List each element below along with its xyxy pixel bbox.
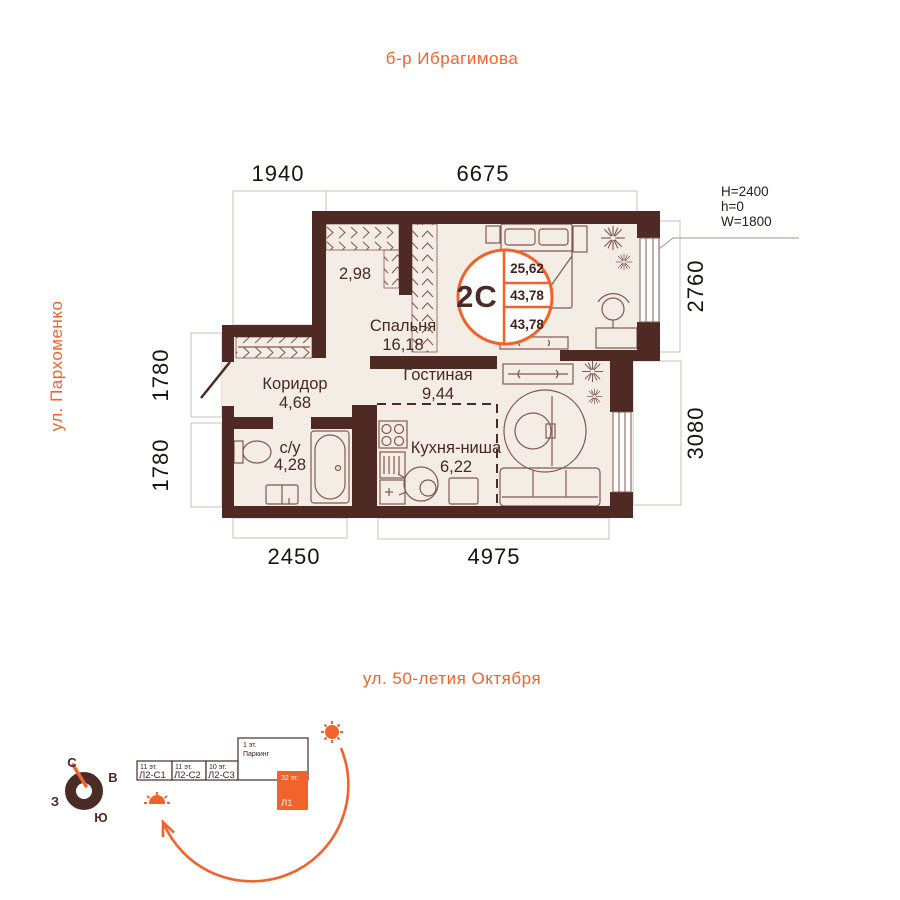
block-floors: 1 эт. bbox=[243, 742, 257, 749]
street-label-left: ул. Пархоменко bbox=[47, 301, 66, 432]
block-name: Л1 bbox=[281, 798, 293, 809]
block-floors: 32 эт. bbox=[281, 775, 299, 782]
block-name: Паркинг bbox=[243, 751, 270, 758]
window-spec-sill: h=0 bbox=[721, 199, 744, 214]
kitchen-area-label: 6,22 bbox=[440, 458, 472, 476]
floorplan-canvas: б-р Ибрагимова ул. Пархоменко ул. 50-лет… bbox=[0, 0, 900, 900]
dim-left-upper: 1780 bbox=[148, 349, 173, 402]
unit-badge: 2С 25,62 43,78 43,78 bbox=[456, 250, 552, 344]
window-spec-height: H=2400 bbox=[721, 184, 769, 199]
compass-south: Ю bbox=[94, 810, 107, 825]
dim-bottom-right: 4975 bbox=[468, 544, 521, 569]
compass-north: С bbox=[67, 755, 77, 770]
kitchen-name-label: Кухня-ниша bbox=[411, 439, 502, 457]
bathroom-name-label: с/у bbox=[279, 439, 301, 457]
sunset-icon bbox=[144, 792, 170, 803]
window-spec-block: H=2400 h=0 W=1800 bbox=[721, 184, 772, 229]
dim-right-lower: 3080 bbox=[683, 407, 708, 460]
dim-bottom-left: 2450 bbox=[268, 544, 321, 569]
living-window bbox=[613, 412, 631, 492]
dim-top-left: 1940 bbox=[252, 161, 305, 186]
wardrobe-hatch-top bbox=[326, 224, 399, 250]
street-label-top: б-р Ибрагимова bbox=[386, 49, 519, 68]
wardrobe-hatch-side bbox=[384, 250, 399, 288]
street-label-bottom: ул. 50-летия Октября bbox=[363, 669, 541, 688]
unit-area-3: 43,78 bbox=[510, 317, 544, 332]
block-name: Л2-С3 bbox=[208, 770, 235, 781]
compass-east: В bbox=[108, 770, 117, 785]
wardrobe-area-label: 2,98 bbox=[339, 265, 371, 283]
block-name: Л2-С2 bbox=[174, 770, 201, 781]
window-spec-width: W=1800 bbox=[721, 214, 772, 229]
dim-top-main: 6675 bbox=[457, 161, 510, 186]
bathroom-area-label: 4,28 bbox=[274, 456, 306, 474]
coat-closet bbox=[236, 337, 312, 358]
floorplan-page: б-р Ибрагимова ул. Пархоменко ул. 50-лет… bbox=[0, 0, 900, 900]
living-name-label: Гостиная bbox=[403, 366, 472, 384]
compass: С В З Ю bbox=[51, 755, 118, 825]
dim-left-lower: 1780 bbox=[148, 439, 173, 492]
sun-icon bbox=[321, 721, 343, 743]
corridor-name-label: Коридор bbox=[262, 375, 327, 393]
unit-area-1: 25,62 bbox=[510, 261, 544, 276]
dim-right-upper: 2760 bbox=[683, 260, 708, 313]
unit-area-2: 43,78 bbox=[510, 288, 544, 303]
compass-west: З bbox=[51, 794, 59, 809]
bedroom-area-label: 16,18 bbox=[382, 336, 423, 354]
unit-type-label: 2С bbox=[456, 279, 498, 314]
corridor-area-label: 4,68 bbox=[279, 394, 311, 412]
bedroom-name-label: Спальня bbox=[370, 317, 436, 335]
living-area-label: 9,44 bbox=[422, 385, 454, 403]
bedroom-window bbox=[640, 238, 659, 322]
block-name: Л2-С1 bbox=[139, 770, 166, 781]
